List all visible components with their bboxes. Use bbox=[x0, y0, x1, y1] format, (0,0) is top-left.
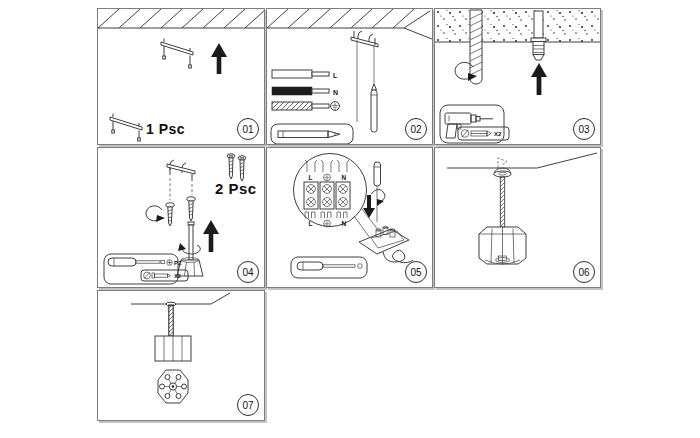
step-number-badge: 03 bbox=[573, 118, 595, 140]
screw-icon bbox=[152, 273, 171, 278]
step-number-badge: 04 bbox=[237, 261, 259, 283]
ceiling-canopy bbox=[494, 168, 511, 177]
wire-legend-neutral: N bbox=[272, 87, 338, 96]
tool-box bbox=[291, 257, 367, 278]
pencil-icon bbox=[271, 124, 353, 144]
screwdriver-icon bbox=[297, 262, 362, 270]
bottom-live-label: L bbox=[309, 220, 313, 227]
step-panel-03: X2 03 bbox=[434, 8, 601, 145]
concrete-ceiling bbox=[435, 9, 600, 42]
terminal-block-diagram: L N L bbox=[304, 160, 350, 227]
down-arrow-icon bbox=[363, 195, 375, 218]
instruction-sheet: 1 Psc 01 bbox=[0, 0, 700, 438]
quantity-label: 1 Psc bbox=[146, 121, 185, 137]
step-number-badge: 06 bbox=[573, 261, 595, 283]
pendant-tube bbox=[371, 45, 377, 132]
pozidriv-icon bbox=[167, 260, 173, 266]
tool-box: PZ X2 bbox=[104, 254, 188, 284]
braided-cord bbox=[169, 305, 173, 336]
ceiling-hatch bbox=[98, 9, 264, 28]
zoom-leader-line bbox=[354, 216, 370, 238]
rotation-arrow-icon bbox=[146, 206, 165, 222]
step-panel-01: 1 Psc 01 bbox=[97, 8, 265, 145]
mounting-bar-part bbox=[110, 114, 142, 142]
up-arrow-icon bbox=[203, 220, 219, 252]
screw bbox=[166, 203, 174, 226]
anchor-icon bbox=[471, 131, 491, 136]
step-panel-04: PZ X2 2 Psc 04 bbox=[97, 147, 265, 288]
top-live-label: L bbox=[309, 174, 313, 181]
anchor-spec-box: X2 bbox=[458, 127, 509, 140]
driver-type-label: PZ bbox=[174, 260, 182, 266]
step-panel-02: L N 02 bbox=[266, 8, 433, 145]
earth-icon bbox=[324, 174, 331, 181]
lamp-shade-front bbox=[155, 336, 191, 361]
anchor-quantity-label: X2 bbox=[494, 131, 502, 137]
earth-icon bbox=[331, 102, 340, 111]
step-panel-07: 07 bbox=[97, 290, 265, 421]
braided-cord bbox=[500, 177, 504, 227]
step-number-badge: 05 bbox=[405, 261, 427, 283]
top-neutral-label: N bbox=[342, 174, 347, 181]
step-number-badge: 02 bbox=[405, 118, 427, 140]
step-panel-06: 06 bbox=[434, 147, 601, 288]
mounting-bar-raised bbox=[161, 39, 193, 69]
diameter-icon bbox=[144, 272, 151, 279]
lamp-shade bbox=[479, 227, 526, 264]
step-number-badge: 01 bbox=[237, 118, 259, 140]
bottom-neutral-label: N bbox=[342, 220, 347, 227]
up-arrow-icon bbox=[531, 63, 547, 95]
wire-legend-live: L bbox=[272, 70, 338, 79]
power-cord bbox=[383, 250, 413, 262]
quantity-label: 2 Psc bbox=[215, 180, 257, 197]
neutral-label: N bbox=[333, 89, 338, 96]
step-number-badge: 07 bbox=[237, 394, 259, 416]
ceiling-line bbox=[447, 153, 597, 168]
tool-box: X2 bbox=[440, 105, 509, 143]
threaded-rod bbox=[178, 222, 200, 260]
live-label: L bbox=[333, 72, 338, 79]
step-panel-05: L N L bbox=[266, 147, 433, 288]
terminal-block-3d bbox=[359, 226, 409, 254]
screw-pair bbox=[227, 154, 246, 181]
screwdriver-icon bbox=[108, 258, 165, 266]
screw bbox=[187, 197, 195, 221]
drill-bit bbox=[470, 10, 482, 84]
wire-legend-earth bbox=[272, 102, 339, 111]
up-arrow-icon bbox=[211, 43, 227, 74]
ceiling-bracket bbox=[167, 160, 195, 181]
ceiling-hatch bbox=[267, 9, 432, 39]
hook-arrow-icon bbox=[371, 189, 385, 206]
ceiling-line bbox=[131, 293, 230, 304]
pendant-tube bbox=[374, 162, 381, 222]
lamp-bottom-view bbox=[158, 370, 188, 403]
ceiling-bracket bbox=[351, 31, 378, 47]
hidden-bracket-mark bbox=[498, 158, 507, 168]
diameter-icon bbox=[461, 130, 469, 138]
screw-quantity-label: X2 bbox=[174, 273, 181, 279]
